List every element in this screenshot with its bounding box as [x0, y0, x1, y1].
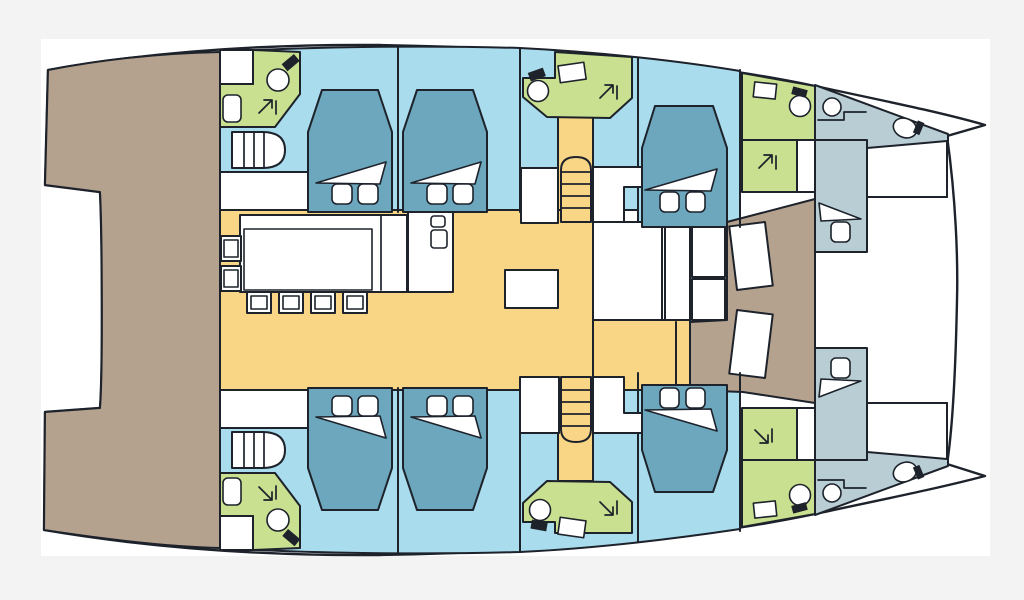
starboard-hull-stairs — [232, 432, 285, 468]
starboard-forward-berth — [642, 385, 727, 492]
port-forward-berth — [642, 106, 727, 227]
toilet-icon — [267, 69, 289, 91]
aft-companionway-locker-left — [520, 377, 559, 433]
toilet-icon — [528, 81, 549, 102]
sink-icon — [753, 82, 776, 99]
toilet-icon — [530, 500, 551, 521]
sink-icon — [753, 501, 776, 518]
toilet-icon — [790, 96, 811, 117]
starboard-forward-shower — [742, 408, 797, 460]
forward-companionway-steps — [561, 157, 591, 222]
galley-sink-right — [431, 230, 447, 248]
galley-counter-lower — [692, 279, 725, 320]
port-bow-deck-box — [867, 141, 947, 197]
crew-sink-icon — [823, 98, 841, 116]
starboard-bow-deck-box — [867, 403, 947, 459]
aft-companionway-steps — [561, 377, 591, 442]
galley-counter-block — [593, 222, 725, 320]
deck-plan-stage — [0, 0, 1024, 600]
port-forward-shower — [742, 140, 797, 192]
galley-counter-strip — [665, 222, 690, 320]
starboard-forward-locker — [797, 408, 815, 460]
crew-sink-icon — [823, 484, 841, 502]
sink-icon — [558, 517, 586, 537]
forward-companionway-locker-left — [521, 168, 558, 223]
starboard-aft-deck-locker — [220, 516, 253, 550]
deck-hatch-port — [729, 222, 773, 290]
port-aft-cabin-vanity — [220, 172, 308, 210]
starboard-aft-cabin-vanity — [220, 390, 308, 428]
toilet-icon — [267, 509, 289, 531]
galley-counter-main — [593, 222, 662, 320]
dinette-table — [244, 229, 372, 290]
port-hull-stairs — [232, 132, 285, 168]
port-aft-deck-locker — [220, 50, 253, 84]
sink-icon — [558, 62, 586, 82]
galley-sink-left — [431, 216, 445, 227]
toilet-icon — [790, 485, 811, 506]
deck-plan-svg — [0, 0, 1024, 600]
port-forward-locker — [797, 140, 815, 192]
sink-icon — [223, 95, 241, 122]
sink-icon — [223, 478, 241, 505]
salon-side-table — [505, 270, 558, 308]
deck-hatch-starboard — [729, 310, 773, 378]
galley-counter-upper — [692, 222, 725, 277]
